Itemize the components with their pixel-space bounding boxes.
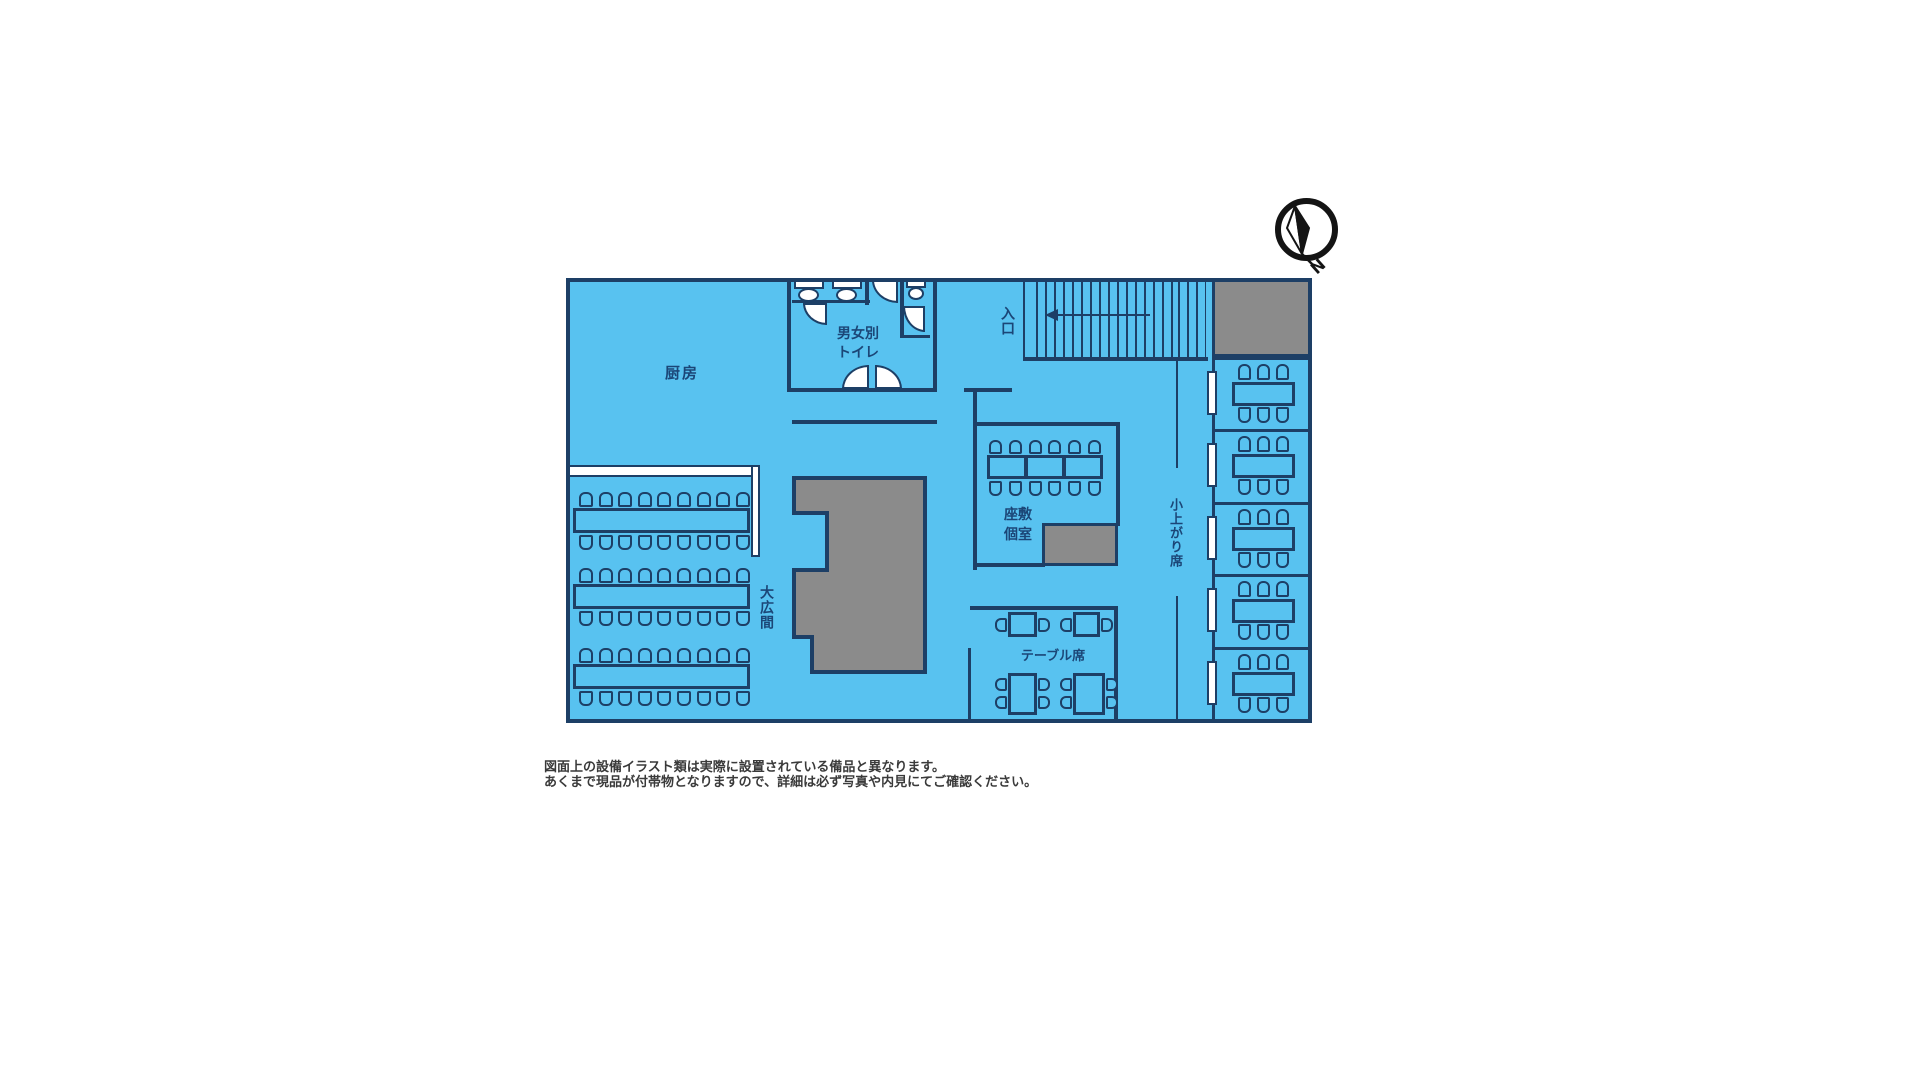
seat	[1276, 479, 1289, 495]
door-icon	[842, 365, 869, 389]
entrance-arrow	[1058, 314, 1150, 316]
wall	[566, 719, 1312, 723]
seat	[1048, 440, 1061, 454]
seat	[736, 648, 750, 663]
seat	[1238, 509, 1251, 525]
seat	[1238, 407, 1251, 423]
booth-door-icon	[1207, 516, 1217, 560]
seat	[1238, 581, 1251, 597]
seat	[1038, 696, 1050, 709]
seat	[1257, 552, 1270, 568]
booth-table	[1232, 527, 1295, 551]
booth-door-icon	[1207, 588, 1217, 632]
booth-divider-wall	[1212, 502, 1308, 505]
seat	[716, 568, 730, 583]
seat	[1068, 440, 1081, 454]
seat	[1257, 624, 1270, 640]
seat	[618, 648, 632, 663]
wall	[970, 606, 1118, 610]
seat	[599, 492, 613, 507]
seat	[618, 492, 632, 507]
seat	[1238, 552, 1251, 568]
seat	[677, 535, 691, 550]
banquet-table	[573, 508, 750, 533]
wall	[1116, 422, 1120, 526]
seat	[677, 568, 691, 583]
seat	[1276, 509, 1289, 525]
zashiki-label: 座敷 個室	[992, 505, 1044, 545]
seat	[1009, 481, 1022, 496]
seat	[657, 568, 671, 583]
toilet-icon	[836, 288, 857, 302]
wall	[1308, 278, 1312, 723]
wall	[968, 648, 971, 719]
seat	[989, 481, 1002, 496]
dining-table	[1073, 612, 1100, 637]
seat	[1257, 581, 1270, 597]
partition-wall	[568, 465, 760, 477]
seat	[1029, 481, 1042, 496]
zashiki-table	[1063, 455, 1103, 479]
seat	[1276, 654, 1289, 670]
seat	[697, 648, 711, 663]
seat	[697, 691, 711, 706]
seat	[638, 535, 652, 550]
wall	[900, 335, 930, 338]
zashiki-table	[987, 455, 1027, 479]
ohiroma-label: 大広間	[756, 573, 776, 641]
seat	[1276, 364, 1289, 380]
seat	[1276, 436, 1289, 452]
gray-area	[1042, 523, 1118, 566]
seat	[736, 568, 750, 583]
staircase	[1178, 282, 1206, 357]
seat	[1257, 479, 1270, 495]
seat	[995, 618, 1007, 632]
seat	[599, 648, 613, 663]
seat	[1009, 440, 1022, 454]
seat	[1238, 624, 1251, 640]
koagari-booths	[1212, 357, 1308, 719]
toilet-icon	[798, 288, 819, 302]
seat	[618, 568, 632, 583]
wall	[933, 278, 937, 392]
seat	[1106, 696, 1118, 709]
seat	[1276, 552, 1289, 568]
seat	[677, 611, 691, 626]
seat	[638, 611, 652, 626]
seat	[638, 691, 652, 706]
wall	[1176, 596, 1178, 719]
seat	[638, 648, 652, 663]
seat	[618, 611, 632, 626]
wall	[964, 388, 1012, 392]
seat	[697, 611, 711, 626]
seat	[1276, 581, 1289, 597]
seat	[995, 696, 1007, 709]
seat	[657, 492, 671, 507]
koagari-label: 小上がり席	[1162, 473, 1184, 593]
seat	[1088, 440, 1101, 454]
wall	[792, 420, 937, 424]
floor-plan: 厨房 男女別 トイレ 入口	[566, 278, 1312, 723]
banquet-table	[573, 584, 750, 609]
toilet-icon	[908, 287, 924, 300]
wall	[865, 278, 869, 305]
zashiki-table	[1025, 455, 1065, 479]
seat	[1106, 678, 1118, 691]
booth-door-icon	[1207, 371, 1217, 415]
seat	[1048, 481, 1061, 496]
wall	[1023, 278, 1025, 357]
seat	[1088, 481, 1101, 496]
seat	[599, 611, 613, 626]
zashiki-label-line2: 個室	[992, 525, 1044, 545]
booth-table	[1232, 454, 1295, 478]
gray-area	[1212, 282, 1308, 357]
seat	[1257, 697, 1270, 713]
seat	[1101, 618, 1113, 632]
partition-wall	[751, 465, 760, 557]
seat	[716, 492, 730, 507]
seat	[697, 492, 711, 507]
seat	[1276, 624, 1289, 640]
toilet-label-line1: 男女別	[826, 325, 890, 344]
gray-area	[792, 476, 932, 678]
door-icon	[803, 303, 827, 325]
seat	[716, 535, 730, 550]
seat	[599, 691, 613, 706]
seat	[677, 492, 691, 507]
seat	[618, 535, 632, 550]
door-icon	[872, 280, 898, 303]
seat	[579, 648, 593, 663]
wall	[973, 563, 1045, 567]
zashiki-label-line1: 座敷	[992, 505, 1044, 525]
wall	[787, 278, 791, 392]
banquet-table	[573, 664, 750, 689]
wall	[973, 422, 1120, 426]
door-icon	[875, 365, 902, 389]
seat	[736, 611, 750, 626]
entrance-arrow-head	[1045, 309, 1058, 321]
seat	[1238, 654, 1251, 670]
seat	[1238, 436, 1251, 452]
toilet-label: 男女別 トイレ	[826, 325, 890, 363]
seat	[579, 492, 593, 507]
seat	[657, 691, 671, 706]
booth-door-icon	[1207, 661, 1217, 705]
disclaimer-caption: 図面上の設備イラスト類は実際に設置されている備品と異なります。 あくまで現品が付…	[544, 760, 1184, 790]
seat	[736, 492, 750, 507]
seat	[1060, 678, 1072, 691]
seat	[638, 492, 652, 507]
booth-table	[1232, 382, 1295, 406]
seat	[1257, 364, 1270, 380]
toilet-label-line2: トイレ	[826, 344, 890, 363]
seat	[579, 568, 593, 583]
booth-table	[1232, 672, 1295, 696]
seat	[716, 648, 730, 663]
seat	[736, 691, 750, 706]
seat	[736, 535, 750, 550]
caption-line2: あくまで現品が付帯物となりますので、詳細は必ず写真や内見にてご確認ください。	[544, 775, 1184, 790]
seat	[677, 691, 691, 706]
seat	[638, 568, 652, 583]
seat	[697, 568, 711, 583]
entrance-label: 入口	[995, 304, 1017, 338]
seat	[1029, 440, 1042, 454]
seat	[995, 678, 1007, 691]
seat	[657, 648, 671, 663]
booth-table	[1232, 599, 1295, 623]
seat	[716, 691, 730, 706]
seat	[579, 691, 593, 706]
seat	[697, 535, 711, 550]
seat	[677, 648, 691, 663]
seat	[716, 611, 730, 626]
wall	[973, 420, 977, 570]
table-seats-label: テーブル席	[1007, 645, 1099, 664]
kitchen-label: 厨房	[658, 362, 706, 383]
seat	[1038, 678, 1050, 691]
seat	[1238, 697, 1251, 713]
seat	[599, 568, 613, 583]
seat	[1257, 407, 1270, 423]
zashiki-furniture	[987, 440, 1107, 498]
dining-table	[1008, 673, 1037, 715]
booth-divider-wall	[1212, 357, 1308, 360]
booth-door-icon	[1207, 443, 1217, 487]
wall	[566, 278, 570, 723]
booth-divider-wall	[1212, 647, 1308, 650]
seat	[1257, 654, 1270, 670]
seat	[1068, 481, 1081, 496]
seat	[1060, 618, 1072, 632]
seat	[599, 535, 613, 550]
floorplan-canvas: N 厨房 男女別 トイレ	[0, 0, 1920, 1080]
seat	[1038, 618, 1050, 632]
dining-table	[1073, 673, 1105, 715]
seat	[1238, 479, 1251, 495]
seat	[1276, 697, 1289, 713]
booth-divider-wall	[1212, 429, 1308, 432]
door-icon	[903, 306, 925, 332]
seat	[657, 535, 671, 550]
seat	[579, 535, 593, 550]
seat	[1060, 696, 1072, 709]
seat	[1276, 407, 1289, 423]
booth-divider-wall	[1212, 574, 1308, 577]
ohiroma-furniture	[573, 492, 750, 706]
dining-table	[1008, 612, 1037, 637]
seat	[618, 691, 632, 706]
seat	[989, 440, 1002, 454]
wall	[1176, 361, 1178, 468]
seat	[657, 611, 671, 626]
caption-line1: 図面上の設備イラスト類は実際に設置されている備品と異なります。	[544, 760, 1184, 775]
seat	[1257, 436, 1270, 452]
wall	[1023, 357, 1208, 361]
seat	[579, 611, 593, 626]
seat	[1257, 509, 1270, 525]
seat	[1238, 364, 1251, 380]
